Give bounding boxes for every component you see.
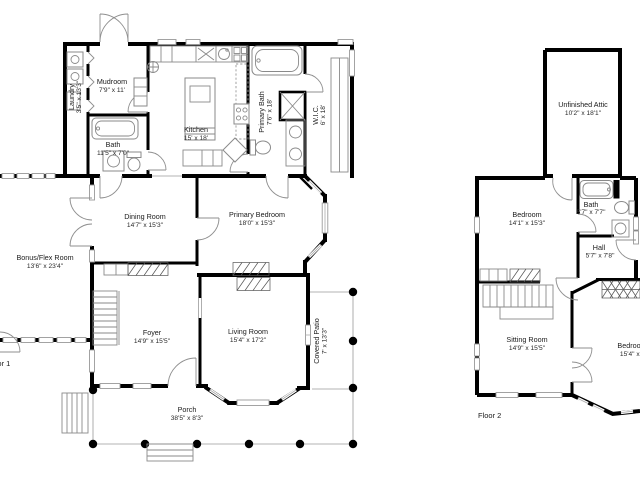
room-dims-hall: 5'7" x 7'8": [586, 253, 615, 260]
room-dims-living-room: 15'4" x 17'2": [230, 337, 267, 344]
room-dims-bedroom: 14'1" x 15'3": [509, 220, 546, 227]
room-label-bath2: Bath: [584, 200, 599, 209]
floor2-label: Floor 2: [478, 411, 501, 420]
room-dims-wic: 6' x 18': [320, 105, 327, 125]
primary-bathtub-icon: [252, 46, 302, 75]
sink2-icon: [612, 220, 629, 237]
room-dims-bedroom2: 15'4" x 17'2": [620, 351, 640, 358]
dresser: [480, 269, 507, 281]
closet-shelving: [331, 58, 348, 172]
room-label-laundry: Laundry: [67, 84, 76, 110]
floor1-label: Floor 1: [0, 359, 10, 368]
room-dims-laundry: 3'5" x 13'3": [76, 80, 83, 113]
room-label-bonus-flex: Bonus/Flex Room: [16, 253, 73, 262]
room-dims-kitchen: 15' x 18': [184, 135, 208, 142]
room-label-primary-bath: Primary Bath: [257, 91, 266, 133]
floor-plan-canvas: Mudroom 7'9" x 11' Laundry 3'5" x 13'3" …: [0, 0, 640, 480]
room-dims-primary-bath: 7'6" x 18': [267, 99, 274, 126]
floor-plan-page: Mudroom 7'9" x 11' Laundry 3'5" x 13'3" …: [0, 0, 640, 480]
stove-icon: [234, 104, 249, 124]
room-label-porch: Porch: [178, 405, 197, 414]
toilet-icon: [127, 152, 141, 171]
room-label-bath1: Bath: [106, 140, 121, 149]
room-label-foyer: Foyer: [143, 328, 162, 337]
room-label-mudroom: Mudroom: [97, 77, 127, 86]
room-dims-covered-patio: 7' x 13'3": [322, 327, 329, 354]
room-label-covered-patio: Covered Patio: [312, 318, 321, 364]
room-dims-porch: 38'5" x 8'3": [171, 415, 204, 422]
bathtub-icon: [92, 118, 138, 139]
room-dims-mudroom: 7'9" x 11': [99, 87, 125, 94]
floor2-fixtures: [480, 180, 640, 319]
room-label-bedroom: Bedroom: [512, 210, 541, 219]
room-dims-bath2: 5'7" x 7'7": [577, 209, 606, 216]
wall-stub: [614, 180, 620, 199]
room-dims-unfinished-attic: 10'2" x 18'1": [565, 110, 602, 117]
porch-and-patio: [62, 288, 357, 461]
floor1-labels: Mudroom 7'9" x 11' Laundry 3'5" x 13'3" …: [0, 77, 329, 422]
room-dims-primary-bedroom: 18'0" x 15'3": [239, 220, 276, 227]
floor2-plan: Unfinished Attic 10'2" x 18'1" Bath 5'7"…: [475, 48, 640, 420]
room-dims-sitting-room: 14'9" x 15'5": [509, 345, 546, 352]
room-label-primary-bedroom: Primary Bedroom: [229, 210, 285, 219]
porch-steps: [62, 393, 193, 461]
floor2-labels: Unfinished Attic 10'2" x 18'1" Bath 5'7"…: [478, 100, 640, 420]
primary-toilet-icon: [250, 140, 271, 155]
mudroom-bench: [134, 78, 147, 106]
porch-posts: [89, 288, 357, 448]
room-label-sitting-room: Sitting Room: [506, 335, 547, 344]
room-label-dining-room: Dining Room: [124, 212, 166, 221]
shower-icon: [280, 92, 305, 120]
toilet2-icon: [615, 201, 635, 214]
stairs: [93, 291, 119, 345]
room-label-living-room: Living Room: [228, 327, 268, 336]
floor1-plan: Mudroom 7'9" x 11' Laundry 3'5" x 13'3" …: [0, 14, 357, 461]
room-label-unfinished-attic: Unfinished Attic: [558, 100, 608, 109]
floor2-windows: [475, 217, 639, 413]
room-label-bedroom2: Bedroom: [617, 341, 640, 350]
room-label-hall: Hall: [593, 243, 606, 252]
room-dims-foyer: 14'9" x 15'5": [134, 338, 171, 345]
room-label-kitchen: Kitchen: [184, 125, 208, 134]
bathtub2-icon: [580, 181, 613, 199]
room-label-wic: W.I.C.: [311, 105, 320, 125]
room-dims-dining-room: 14'7" x 15'3": [127, 222, 164, 229]
room-dims-bonus-flex: 13'6" x 23'4": [27, 263, 64, 270]
vanity-icon: [286, 120, 305, 166]
stairs2: [483, 285, 553, 319]
room-dims-bath1: 11'5" x 7'0": [97, 150, 130, 157]
